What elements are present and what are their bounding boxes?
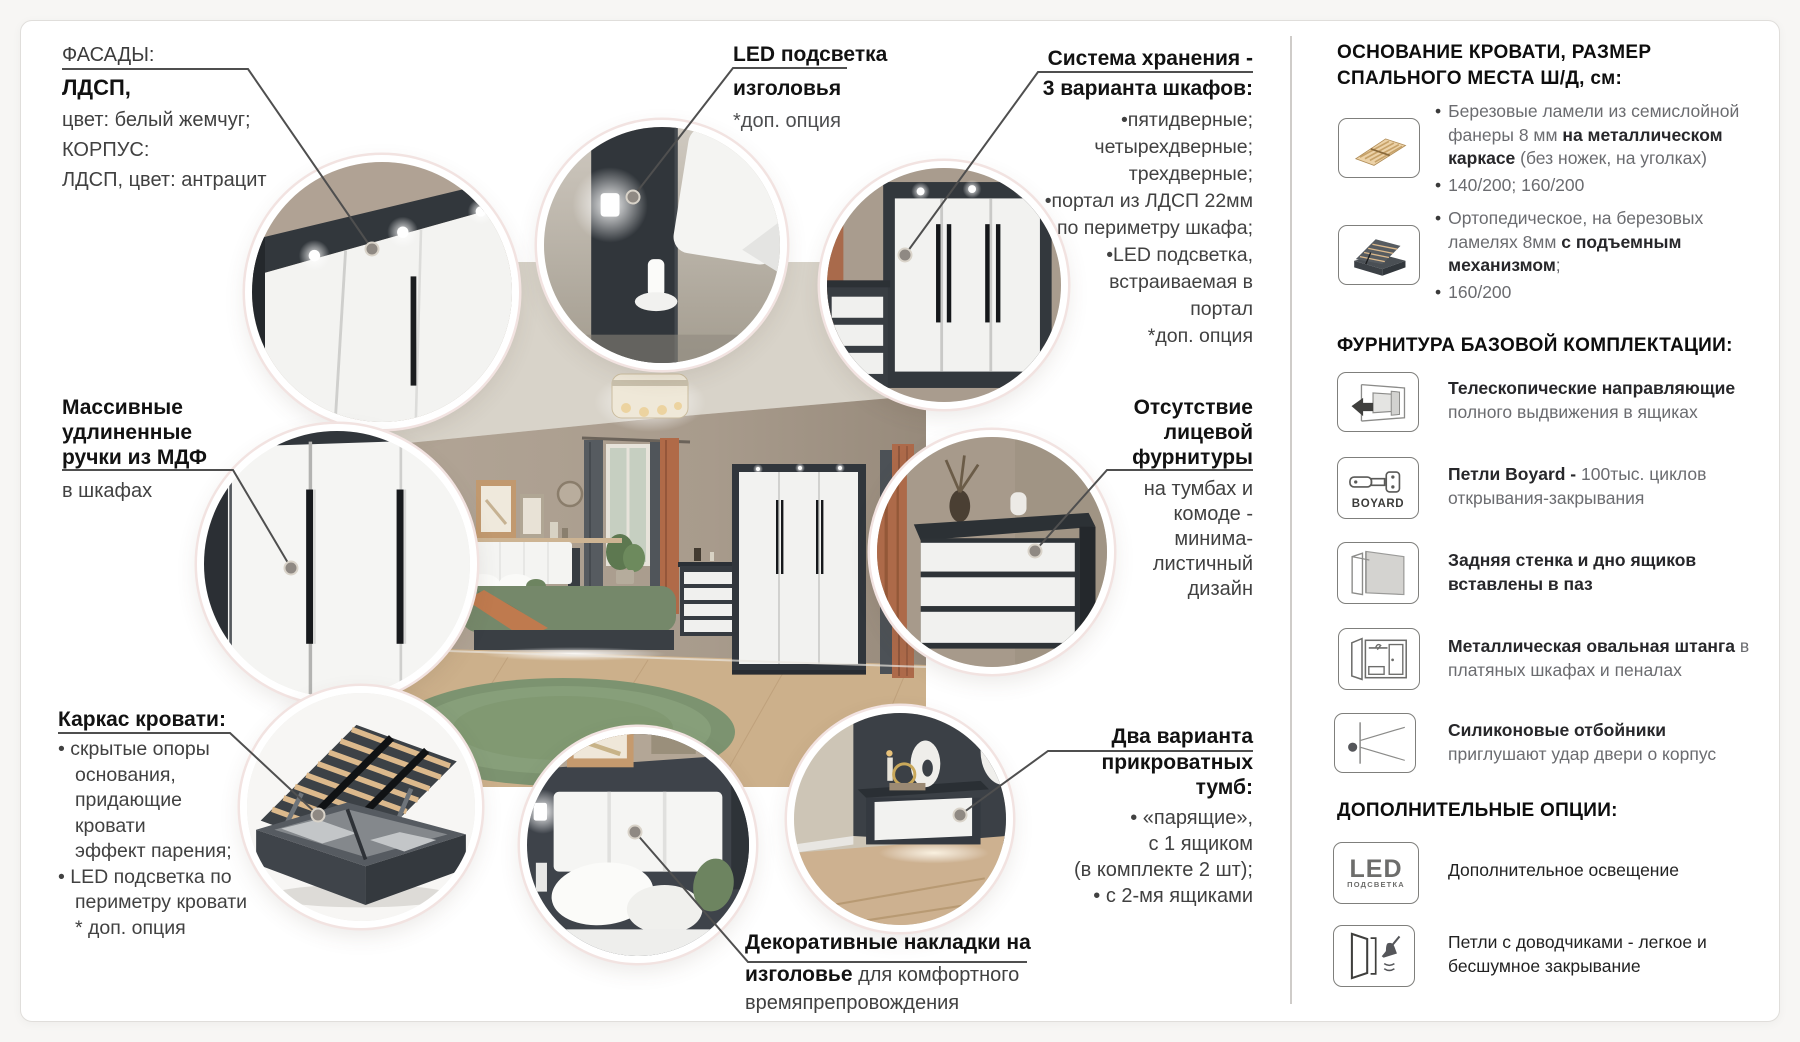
nofittings-line: комоде -	[1053, 502, 1253, 527]
vertical-divider	[1290, 36, 1292, 1004]
base-text: ;	[1556, 255, 1561, 275]
nofittings-line: дизайн	[1053, 577, 1253, 602]
nightstands-line: с 1 ящиком	[1053, 831, 1253, 857]
nofittings-title: фурнитуры	[1053, 445, 1253, 470]
bedframe-line: • LED подсветка по	[58, 865, 288, 891]
nightstands-line: • с 2-мя ящиками	[1053, 883, 1253, 909]
bullet: •	[1435, 100, 1441, 171]
boyard-label: BOYARD	[1352, 498, 1404, 510]
facades-line: КОРПУС:	[62, 135, 322, 165]
storage-line: встраиваемая в	[953, 269, 1253, 296]
storage-line: трехдверные;	[953, 161, 1253, 188]
storage-line: •портал из ЛДСП 22мм	[953, 188, 1253, 215]
nightstands-title: прикроватных	[1053, 750, 1253, 776]
base-sizes: 160/200	[1448, 281, 1511, 305]
storage-line: *доп. опция	[953, 323, 1253, 350]
led-icon-subtext: ПОДСВЕТКА	[1347, 880, 1405, 889]
bedframe-line: кровати	[58, 814, 288, 840]
bedframe-line: эффект парения;	[58, 839, 288, 865]
bullet: •	[1435, 281, 1441, 305]
handles-tail: в шкафах	[62, 479, 282, 504]
nofittings-line: листичный	[1053, 552, 1253, 577]
fitting-bold: Задняя стенка и дно ящиков вставлены в п…	[1448, 550, 1696, 594]
nofittings-title: лицевой	[1053, 420, 1253, 445]
drawer-slides-glyph	[1343, 378, 1413, 426]
decor-text2: времяпрепровождения	[745, 990, 1065, 1016]
facades-label: ФАСАДЫ:	[62, 42, 322, 68]
callout-no-fittings: Отсутствие лицевой фурнитуры на тумбах и…	[1053, 395, 1253, 602]
callout-circle-wardrobe-corner	[245, 155, 519, 429]
infographic-page: { "palette": { "anthracite": "#33383d", …	[0, 0, 1800, 1042]
bullet: •	[1435, 174, 1441, 198]
bedframe-line: придающие	[58, 788, 288, 814]
bullet: •	[1435, 207, 1441, 278]
fitting-bold: Силиконовые отбойники	[1448, 718, 1764, 742]
nightstand-detail	[794, 713, 1006, 925]
fitting-item: Металлическая овальная штанга в платяных…	[1448, 634, 1764, 682]
led-title: LED подсветка	[733, 42, 953, 68]
storage-line: четырехдверные;	[953, 134, 1253, 161]
storage-title2: 3 варианта шкафов:	[953, 75, 1253, 102]
storage-title1: Система хранения -	[953, 45, 1253, 72]
bedframe-line: периметру кровати	[58, 890, 288, 916]
callout-mdf-handles: Массивные удлиненные ручки из МДФ в шкаф…	[62, 395, 282, 504]
lift-mechanism-glyph	[1343, 231, 1415, 279]
storage-line: портал	[953, 296, 1253, 323]
callout-facades: ФАСАДЫ: ЛДСП, цвет: белый жемчуг; КОРПУС…	[62, 42, 322, 195]
sidebar-heading-bed-base: ОСНОВАНИЕ КРОВАТИ, РАЗМЕР СПАЛЬНОГО МЕСТ…	[1337, 40, 1729, 92]
option-text: Дополнительное освещение	[1448, 860, 1679, 880]
nightstands-line: (в комплекте 2 шт);	[1053, 857, 1253, 883]
nightstands-title: тумб:	[1053, 775, 1253, 801]
callout-bed-frame: Каркас кровати: • скрытые опоры основани…	[58, 707, 288, 941]
decor-title: Декоративные накладки на	[745, 930, 1065, 956]
oval-rail-icon	[1338, 628, 1420, 690]
oval-rail-glyph	[1345, 634, 1413, 684]
fitting-item: Силиконовые отбойникиприглушают удар две…	[1448, 718, 1764, 766]
option-item: Дополнительное освещение	[1448, 858, 1778, 882]
nofittings-title: Отсутствие	[1053, 395, 1253, 420]
fitting-text: полного выдвижения в ящиках	[1448, 402, 1698, 422]
decor-text: для комфортного	[853, 964, 1020, 986]
hinge-glyph	[1345, 467, 1411, 497]
bedframe-line: * доп. опция	[58, 916, 288, 942]
boyard-hinge-icon: BOYARD	[1337, 457, 1419, 519]
led-headboard-detail	[544, 127, 780, 363]
sidebar-base-item: • Ортопедическое, на березовых ламелях 8…	[1435, 207, 1765, 304]
decor-title2: изголовье	[745, 963, 853, 986]
base-sizes: 140/200; 160/200	[1448, 174, 1584, 198]
bedframe-line: • скрытые опоры	[58, 737, 288, 763]
silicone-bumper-icon	[1334, 713, 1416, 773]
callout-nightstands: Два варианта прикроватных тумб: • «парящ…	[1053, 724, 1253, 909]
callout-led-headboard: LED подсветка изголовья *доп. опция	[733, 42, 953, 134]
fitting-bold: Телескопические направляющие	[1448, 378, 1735, 398]
fitting-bold: Петли Boyard -	[1448, 464, 1581, 484]
nightstands-line: • «парящие»,	[1053, 805, 1253, 831]
fitting-item: Телескопические направляющие полного выд…	[1448, 376, 1764, 424]
fitting-text: приглушают удар двери о корпус	[1448, 744, 1716, 764]
callout-circle-nightstand	[787, 706, 1013, 932]
bed-slats-glyph	[1343, 124, 1415, 172]
storage-line: •пятидверные;	[953, 107, 1253, 134]
handles-title: Массивные	[62, 395, 282, 420]
sidebar-heading-fittings: ФУРНИТУРА БАЗОВОЙ КОМПЛЕКТАЦИИ:	[1337, 333, 1777, 359]
drawer-slides-icon	[1337, 372, 1419, 432]
handles-title: удлиненные	[62, 420, 282, 445]
facades-material: ЛДСП,	[62, 71, 322, 105]
silicone-bumper-glyph	[1340, 719, 1410, 767]
storage-line: •LED подсветка,	[953, 242, 1253, 269]
wardrobe-corner-detail	[252, 162, 512, 422]
callout-decor-pads: Декоративные накладки на изголовье для к…	[745, 930, 1065, 1016]
back-panel-glyph	[1343, 548, 1413, 598]
base-text: (без ножек, на уголках)	[1515, 148, 1707, 168]
callout-storage-system: Система хранения - 3 варианта шкафов: •п…	[953, 45, 1253, 350]
bedframe-title: Каркас кровати:	[58, 707, 288, 733]
storage-line: по периметру шкафа;	[953, 215, 1253, 242]
callout-circle-led-headboard	[537, 120, 787, 370]
soft-close-glyph	[1340, 931, 1408, 981]
sidebar-base-item: • Березовые ламели из семислойной фанеры…	[1435, 100, 1765, 197]
handles-title: ручки из МДФ	[62, 445, 282, 470]
nofittings-line: на тумбах и	[1053, 477, 1253, 502]
nofittings-line: минима-	[1053, 527, 1253, 552]
fitting-item: Петли Boyard - 100тыс. циклов открывания…	[1448, 462, 1764, 510]
led-icon: LED ПОДСВЕТКА	[1333, 842, 1419, 904]
facades-line: цвет: белый жемчуг;	[62, 105, 322, 135]
led-title2: изголовья	[733, 76, 953, 102]
bed-slats-icon	[1338, 118, 1420, 178]
fitting-item: Задняя стенка и дно ящиков вставлены в п…	[1448, 548, 1764, 596]
facades-line: ЛДСП, цвет: антрацит	[62, 165, 322, 195]
lift-mechanism-icon	[1338, 225, 1420, 285]
callout-circle-headboard-pads	[520, 727, 756, 963]
soft-close-hinge-icon	[1333, 925, 1415, 987]
sidebar-heading-options: ДОПОЛНИТЕЛЬНЫЕ ОПЦИИ:	[1337, 798, 1777, 824]
option-text: Петли с доводчиками - легкое и бесшумное…	[1448, 932, 1707, 976]
nightstands-title: Два варианта	[1053, 724, 1253, 750]
led-note: *доп. опция	[733, 108, 953, 134]
back-panel-icon	[1337, 542, 1419, 604]
option-item: Петли с доводчиками - легкое и бесшумное…	[1448, 930, 1778, 978]
headboard-pads-detail	[527, 734, 749, 956]
led-icon-text: LED	[1350, 858, 1403, 880]
fitting-bold: Металлическая овальная штанга	[1448, 636, 1735, 656]
bedframe-line: основания,	[58, 763, 288, 789]
